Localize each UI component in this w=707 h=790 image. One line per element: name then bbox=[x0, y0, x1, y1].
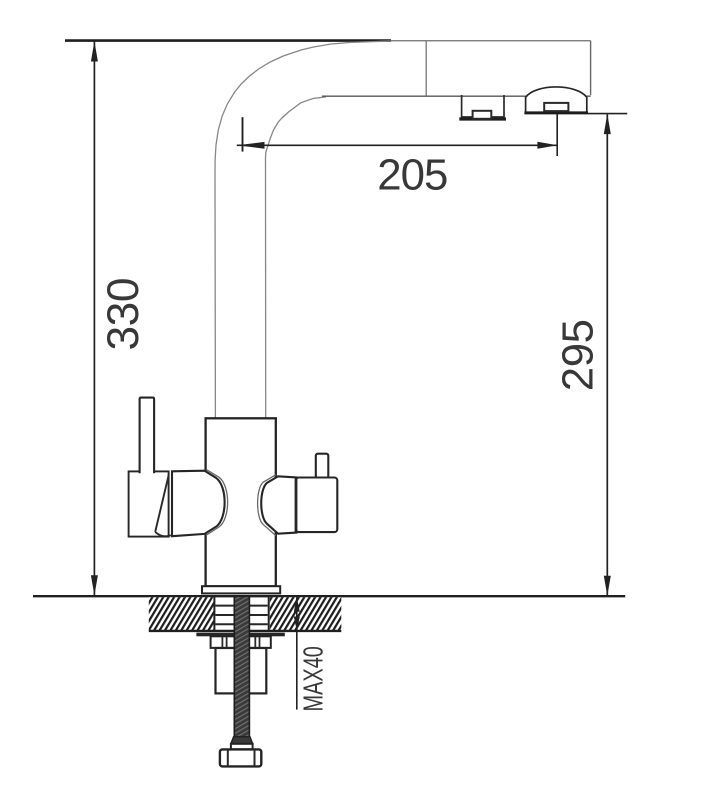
svg-text:330: 330 bbox=[99, 278, 148, 351]
svg-text:205: 205 bbox=[377, 151, 447, 200]
svg-text:295: 295 bbox=[554, 319, 603, 391]
svg-text:MAX40: MAX40 bbox=[299, 646, 330, 711]
